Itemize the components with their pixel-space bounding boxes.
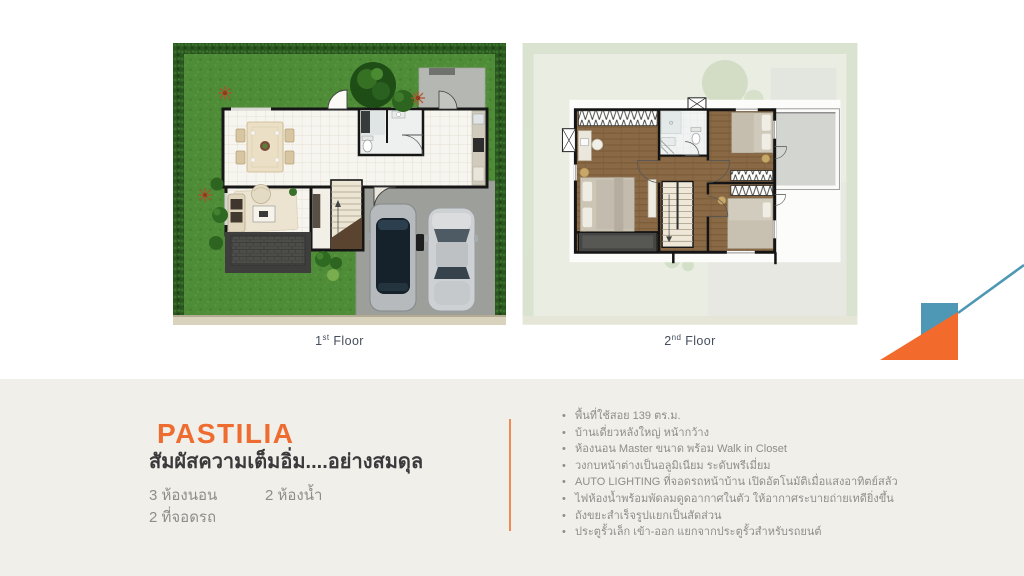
- sink2: [661, 138, 675, 146]
- shower: [361, 111, 370, 133]
- feature-item: • พื้นที่ใช้สอย 139 ตร.ม.: [562, 410, 902, 422]
- vent-symbol: [688, 98, 706, 110]
- hedge-right: [495, 43, 506, 317]
- hedge-top: [173, 43, 506, 54]
- stairs2: [662, 182, 693, 248]
- master-wardrobe: [578, 111, 657, 126]
- product-tagline: สัมผัสความเต็มอิ่ม....อย่างสมดุล: [149, 450, 499, 475]
- closet-bedroom3: [731, 185, 773, 195]
- car-silver: [425, 208, 478, 311]
- car-dark: [367, 204, 419, 311]
- master-bed: [580, 168, 634, 241]
- parking-bollard: [416, 234, 424, 251]
- orange-divider: [509, 419, 511, 531]
- bullet-dot: •: [562, 493, 566, 505]
- second-floor-plan-drawing: [522, 43, 858, 325]
- feature-item: • บ้านเดี่ยวหลังใหญ่ หน้ากว้าง: [562, 427, 902, 439]
- bathroom2: [659, 110, 708, 156]
- bullet-dot: •: [562, 510, 566, 522]
- product-details: PASTILIA สัมผัสความเต็มอิ่ม....อย่างสมดุ…: [149, 420, 499, 526]
- feature-item: • AUTO LIGHTING ที่จอดรถหน้าบ้าน เปิดอัต…: [562, 476, 902, 488]
- spec-parking: 2 ที่จอดรถ: [149, 510, 265, 527]
- bullet-dot: •: [562, 460, 566, 472]
- orange-triangle: [880, 312, 958, 360]
- bullet-dot: •: [562, 476, 566, 488]
- spec-list: 3 ห้องนอน 2 ห้องน้ำ 2 ที่จอดรถ: [149, 488, 499, 526]
- closet-bedroom2: [731, 171, 773, 181]
- first-floor-plan: [173, 43, 506, 325]
- feature-list: • พื้นที่ใช้สอย 139 ตร.ม. • บ้านเดี่ยวหล…: [562, 410, 902, 543]
- front-fence: [173, 317, 506, 325]
- toilet: [363, 140, 372, 152]
- feature-item: • ห้องนอน Master ขนาด พร้อม Walk in Clos…: [562, 443, 902, 455]
- first-floor-plan-drawing: [173, 43, 506, 325]
- feature-item: • ไฟห้องน้ำพร้อมพัดลมดูดอากาศในตัว ให้อา…: [562, 493, 902, 505]
- stairs: [331, 180, 362, 249]
- second-floor-label: 2nd Floor: [522, 333, 858, 348]
- spec-bedrooms: 3 ห้องนอน: [149, 488, 265, 505]
- patio-deck: [225, 232, 311, 273]
- decorative-shapes: [855, 255, 1024, 365]
- house-second-floor: [562, 108, 786, 264]
- bullet-dot: •: [562, 427, 566, 439]
- second-floor-plan: [522, 43, 858, 325]
- first-floor-label: 1st Floor: [173, 333, 506, 348]
- shower2: [661, 112, 681, 134]
- teal-line: [958, 265, 1024, 313]
- product-name: PASTILIA: [157, 420, 499, 448]
- toilet2: [692, 133, 700, 144]
- bullet-dot: •: [562, 443, 566, 455]
- slide: 1st Floor 2nd Floor PASTILIA สัมผัสความเ…: [0, 0, 1024, 576]
- living-room: [228, 185, 298, 233]
- hedge-left: [173, 43, 184, 317]
- bay-window: [562, 129, 575, 152]
- feature-item: • วงกบหน้าต่างเป็นอลูมิเนียม ระดับพรีเมี…: [562, 460, 902, 472]
- kitchen: [472, 111, 485, 185]
- feature-item: • ประตูรั้วเล็ก เข้า-ออก แยกจากประตูรั้ว…: [562, 526, 902, 538]
- bullet-dot: •: [562, 410, 566, 422]
- feature-item: • ถังขยะสำเร็จรูปแยกเป็นสัดส่วน: [562, 510, 902, 522]
- tv-console: [313, 194, 321, 228]
- spec-bathrooms: 2 ห้องน้ำ: [265, 488, 499, 505]
- bathroom: [359, 109, 423, 156]
- master-tv-cabinet: [648, 180, 656, 218]
- balcony: [578, 232, 657, 252]
- roof-terrace: [772, 109, 840, 190]
- bullet-dot: •: [562, 526, 566, 538]
